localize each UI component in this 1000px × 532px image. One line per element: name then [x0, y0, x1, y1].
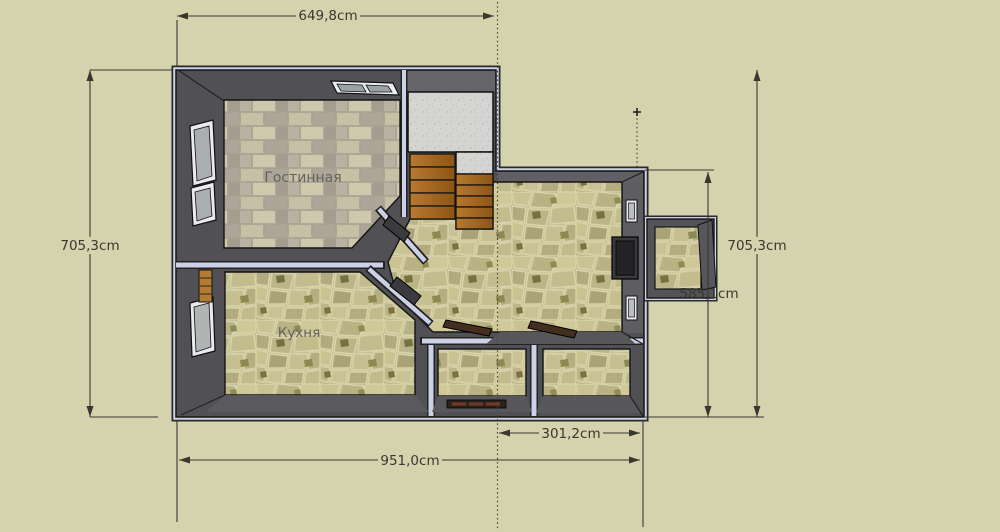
living-room-window-upper: [190, 120, 216, 186]
stair-top-wall: [406, 71, 495, 91]
extension-room-floor: [655, 227, 701, 289]
kitchen-label: Кухня: [278, 325, 321, 341]
bottom-right-room-floor: [543, 349, 630, 396]
bottom-right-room-wall-face: [536, 396, 640, 413]
dimension-wing-width-label: 301,2cm: [541, 426, 600, 442]
dimension-bottom-label: 951,0cm: [380, 453, 439, 469]
kitchen-window: [190, 297, 215, 357]
wing-window-upper: [626, 200, 637, 222]
stair-half-landing: [456, 152, 493, 174]
skylight-window: [331, 81, 399, 95]
dimension-top-label: 649,8cm: [298, 8, 357, 24]
bottom-left-room-floor: [438, 349, 526, 396]
staircase: [404, 70, 493, 229]
stair-run-west: [410, 154, 455, 219]
floor-plan-viewport[interactable]: Гостинная Кухня: [0, 0, 1000, 532]
stair-landing: [408, 92, 493, 152]
living-room-window-lower: [191, 182, 216, 226]
wing-window-lower: [626, 296, 637, 320]
dimension-left-label: 705,3cm: [60, 238, 119, 254]
floor-plan-canvas: Гостинная Кухня: [0, 0, 1000, 532]
kitchen-shelf-ladder: [199, 270, 212, 302]
wing-fireplace: [612, 237, 638, 279]
living-room-label: Гостинная: [264, 170, 341, 186]
dimension-wing-height-label: 585,1cm: [679, 286, 738, 302]
dimension-right-label: 705,3cm: [727, 238, 786, 254]
stair-run-east: [456, 174, 493, 229]
kitchen-south-wall-face: [206, 395, 429, 412]
